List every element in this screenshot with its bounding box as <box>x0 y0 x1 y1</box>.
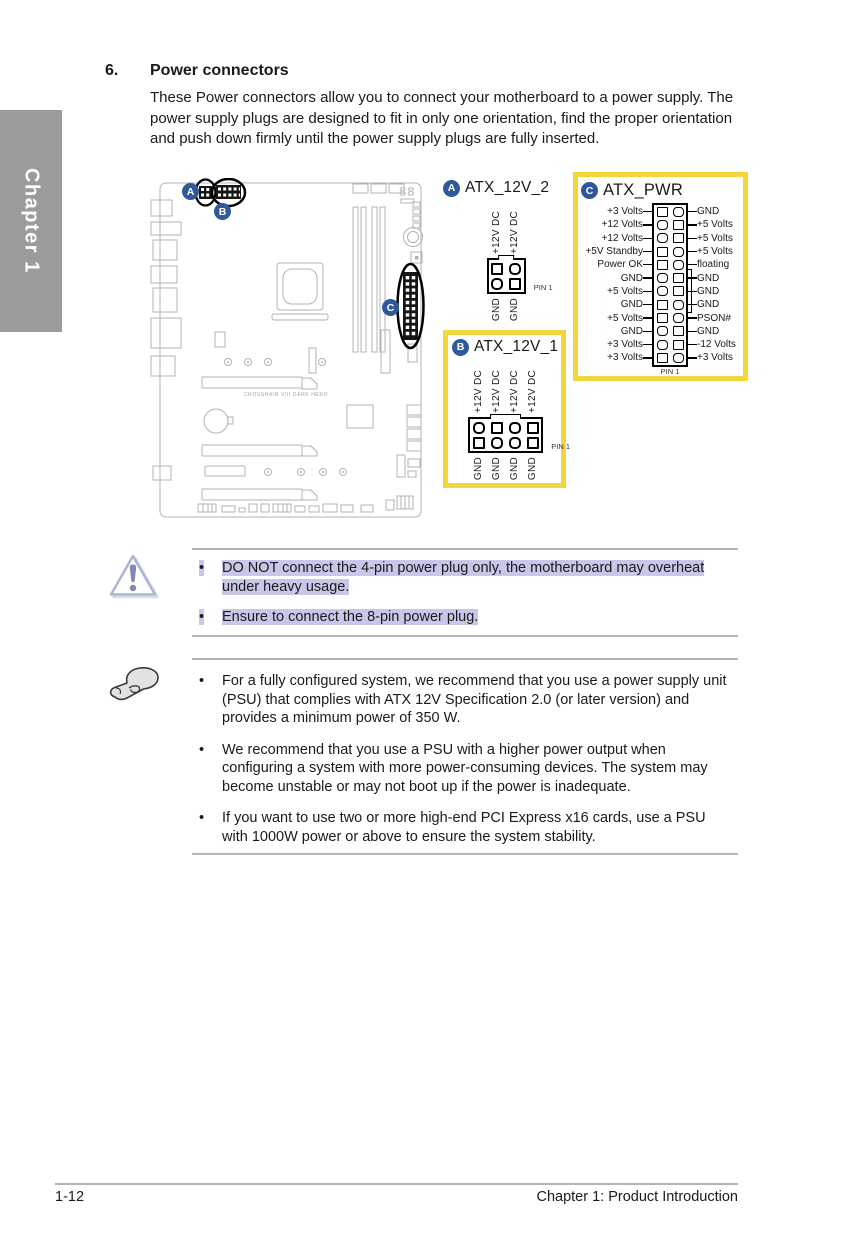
bullet-dot: • <box>199 609 204 625</box>
pin <box>509 422 521 434</box>
pin <box>657 340 668 350</box>
bullet: • <box>192 672 222 728</box>
pin-label-right: GND <box>697 273 740 284</box>
pin <box>673 353 684 363</box>
pin-label: GND <box>488 298 506 321</box>
pin-label-left: +3 Volts <box>581 352 643 363</box>
atx-pwr-row: +3 Volts+3 Volts <box>581 351 740 364</box>
dimm-slots <box>353 207 385 352</box>
panel-b-badge: B <box>452 339 469 356</box>
bullet: • <box>192 741 222 797</box>
pin-label-text: +12V DC <box>492 211 502 254</box>
atx-pwr-row: GNDGND <box>581 298 740 311</box>
pin-pair <box>652 207 688 217</box>
bullet: • <box>192 809 222 846</box>
pin-lead-line <box>643 238 652 239</box>
page-number: 1-12 <box>55 1189 84 1205</box>
pin <box>509 263 521 275</box>
pin <box>673 326 684 336</box>
pin <box>657 273 668 283</box>
pin <box>673 220 684 230</box>
pin-label-left: GND <box>581 326 643 337</box>
motherboard-diagram: 88 CROSSHAIR VIII DARK HERO <box>150 178 430 522</box>
pin-label-right: PSON# <box>697 313 740 324</box>
pin-lead-line <box>643 224 652 225</box>
pin-label-left: +3 Volts <box>581 339 643 350</box>
pin <box>657 207 668 217</box>
pin-label-text: GND <box>510 457 520 480</box>
pin <box>473 422 485 434</box>
pin-pair <box>652 340 688 350</box>
list-item-text-span: If you want to use two or more high-end … <box>222 810 706 845</box>
pin-label-text: GND <box>528 457 538 480</box>
pin-label-text: +12V DC <box>528 370 538 413</box>
pin-row <box>473 437 539 449</box>
bullet-dot: • <box>199 673 204 689</box>
power-connector-figure: 88 CROSSHAIR VIII DARK HERO A B C <box>0 160 848 560</box>
warning-list: •DO NOT connect the 4-pin power plug onl… <box>192 559 738 627</box>
debug-code-display: 88 <box>399 184 415 199</box>
rear-io-ports <box>151 200 181 480</box>
pin-label: GND <box>506 298 524 321</box>
pin-lead-line <box>688 264 697 265</box>
pin-lead-line <box>688 251 697 252</box>
panel-a-badge: A <box>443 180 460 197</box>
pin-pair <box>652 326 688 336</box>
pin-label-text: GND <box>492 457 502 480</box>
pin-label-right: floating <box>697 259 740 270</box>
panel-c-badge: C <box>581 182 598 199</box>
sata-ports <box>407 405 421 451</box>
pin-label-left: +5V Standby <box>581 246 643 257</box>
atx-12v-2-panel: A ATX_12V_2 +12V DC+12V DCPIN 1GNDGND <box>443 179 569 321</box>
atx-pwr-title: ATX_PWR <box>603 181 683 200</box>
pin-label-text: GND <box>474 457 484 480</box>
pin-lead-line <box>688 344 697 345</box>
pin-label-right: +3 Volts <box>697 352 740 363</box>
pin-label-text: +12V DC <box>492 370 502 413</box>
pin-lead-line <box>688 211 697 212</box>
atx-12v-1-location <box>216 185 241 199</box>
atx-12v-2-header: A ATX_12V_2 <box>443 179 569 197</box>
atx-12v-1-title: ATX_12V_1 <box>474 338 558 356</box>
section-title: Power connectors <box>150 62 289 80</box>
pin-label-left: GND <box>581 273 643 284</box>
pin-label-text: GND <box>492 298 502 321</box>
cmos-battery <box>204 409 228 433</box>
pin <box>673 207 684 217</box>
bullet-dot: • <box>199 742 204 758</box>
pin-label-right: GND <box>697 286 740 297</box>
pin <box>673 313 684 323</box>
pin-labels-top: +12V DC+12V DC <box>488 202 524 254</box>
pin-labels-bottom: GNDGND <box>488 298 524 321</box>
list-item-text-span: DO NOT connect the 4-pin power plug only… <box>222 560 704 595</box>
pin-row <box>491 263 521 275</box>
pin-lead-line <box>643 277 652 278</box>
display-base <box>401 199 414 203</box>
atx-12v-1-panel: B ATX_12V_1 +12V DC+12V DC+12V DC+12V DC… <box>443 330 566 488</box>
list-item-text: DO NOT connect the 4-pin power plug only… <box>222 559 727 596</box>
pin-pair <box>652 286 688 296</box>
atx-pwr-location <box>403 272 418 340</box>
pin-label: +12V DC <box>506 370 524 413</box>
pin-label: +12V DC <box>488 211 506 254</box>
atx-pwr-row: +3 Volts-12 Volts <box>581 338 740 351</box>
board-marker-c-badge: C <box>382 299 399 316</box>
bullet-dot: • <box>199 560 204 576</box>
connector-body: PIN 1 <box>487 258 526 294</box>
pin-lead-line <box>643 357 652 358</box>
pin <box>673 247 684 257</box>
list-item: •Ensure to connect the 8-pin power plug. <box>192 608 738 627</box>
pin-lead-line <box>688 331 697 332</box>
pin-label: +12V DC <box>470 370 488 413</box>
list-item-text-span: Ensure to connect the 8-pin power plug. <box>222 609 478 625</box>
pin-label-text: +12V DC <box>510 211 520 254</box>
pin <box>673 233 684 243</box>
atx-pwr-latch <box>686 269 692 313</box>
list-item-text: Ensure to connect the 8-pin power plug. <box>222 608 727 627</box>
pin <box>491 422 503 434</box>
connector-body: PIN 1 <box>468 417 543 453</box>
pin-label-right: GND <box>697 206 740 217</box>
pin-label-right: +5 Volts <box>697 233 740 244</box>
pin-row <box>473 422 539 434</box>
pin-pair <box>652 233 688 243</box>
pin-pair <box>652 247 688 257</box>
pin-label: GND <box>488 457 506 480</box>
pin1-label: PIN 1 <box>534 283 553 292</box>
board-marker-b-badge: B <box>214 203 231 220</box>
pin-labels-bottom: GNDGNDGNDGND <box>470 457 542 480</box>
pin-label-left: Power OK <box>581 259 643 270</box>
pump-header <box>404 228 423 247</box>
pin-label: GND <box>524 457 542 480</box>
atx-12v-1-header: B ATX_12V_1 <box>452 338 559 356</box>
pin-label-text: GND <box>510 298 520 321</box>
footer-chapter-title: Chapter 1: Product Introduction <box>438 1189 738 1205</box>
pin-lead-line <box>688 357 697 358</box>
pin-labels-top: +12V DC+12V DC+12V DC+12V DC <box>470 361 542 413</box>
pin-label: +12V DC <box>506 211 524 254</box>
pin-label-right: +5 Volts <box>697 219 740 230</box>
atx-12v-2-location <box>199 186 212 199</box>
screw-holes <box>225 359 347 476</box>
pin-pair <box>652 260 688 270</box>
list-item: •We recommend that you use a PSU with a … <box>192 741 738 797</box>
pin <box>509 437 521 449</box>
fan-headers <box>353 184 404 193</box>
footer-rule <box>55 1183 738 1185</box>
pin-lead-line <box>643 211 652 212</box>
board-marker-a-badge: A <box>182 183 199 200</box>
pin-row <box>491 278 521 290</box>
pin <box>491 263 503 275</box>
atx-pwr-row: +3 VoltsGND <box>581 205 740 218</box>
board-outline-group <box>151 183 423 517</box>
chipset <box>347 405 373 428</box>
atx-12v-1-pinout: +12V DC+12V DC+12V DC+12V DCPIN 1GNDGNDG… <box>452 361 559 480</box>
list-item-text: For a fully configured system, we recomm… <box>222 672 727 728</box>
pin <box>673 286 684 296</box>
pin-lead-line <box>643 251 652 252</box>
pin-lead-line <box>688 317 697 318</box>
pin-label-right: -12 Volts <box>697 339 740 350</box>
atx-pwr-row: +12 Volts+5 Volts <box>581 232 740 245</box>
connector-tab <box>498 255 514 260</box>
pin-lead-line <box>643 264 652 265</box>
pin <box>673 273 684 283</box>
manual-page: Chapter 1 6. Power connectors These Powe… <box>0 0 848 1248</box>
pin <box>673 340 684 350</box>
pin-lead-line <box>688 238 697 239</box>
pin1-label: PIN 1 <box>551 442 570 451</box>
pin <box>657 233 668 243</box>
pin-label: +12V DC <box>488 370 506 413</box>
pin-label: GND <box>506 457 524 480</box>
note-block: •For a fully configured system, we recom… <box>192 658 738 855</box>
bullet: • <box>192 559 222 596</box>
pin <box>657 353 668 363</box>
pin-lead-line <box>643 304 652 305</box>
pin <box>527 422 539 434</box>
pin <box>657 313 668 323</box>
pin-pair <box>652 220 688 230</box>
board-model-label: CROSSHAIR VIII DARK HERO <box>244 392 328 398</box>
pin-headers <box>413 202 420 228</box>
m2-connector <box>215 332 225 347</box>
pin <box>657 220 668 230</box>
list-item-text-span: We recommend that you use a PSU with a h… <box>222 742 708 795</box>
pin-pair <box>652 353 688 363</box>
warning-icon <box>107 551 161 601</box>
connector-tab <box>490 414 522 419</box>
pin <box>673 300 684 310</box>
pin <box>657 260 668 270</box>
atx-pwr-row: +5 VoltsGND <box>581 285 740 298</box>
bottom-headers <box>198 496 413 512</box>
list-item-text: We recommend that you use a PSU with a h… <box>222 741 727 797</box>
pin-label-right: GND <box>697 299 740 310</box>
atx-12v-2-pinout: +12V DC+12V DCPIN 1GNDGND <box>443 202 569 321</box>
pin <box>673 260 684 270</box>
pin-label-left: +3 Volts <box>581 206 643 217</box>
pin <box>527 437 539 449</box>
section-intro: These Power connectors allow you to conn… <box>150 88 746 150</box>
pin <box>657 286 668 296</box>
atx-pwr-panel: C ATX_PWR +3 VoltsGND+12 Volts+5 Volts+1… <box>573 172 748 381</box>
list-item-text-span: For a fully configured system, we recomm… <box>222 673 727 726</box>
section-number: 6. <box>105 62 118 80</box>
note-hand-icon <box>105 660 163 706</box>
atx-pwr-rows: +3 VoltsGND+12 Volts+5 Volts+12 Volts+5 … <box>581 205 740 365</box>
pin-lead-line <box>643 317 652 318</box>
pin <box>657 326 668 336</box>
atx-pwr-pin1-label: PIN 1 <box>652 367 688 376</box>
bullet: • <box>192 608 222 627</box>
list-item: •If you want to use two or more high-end… <box>192 809 738 846</box>
atx-pwr-row: Power OKfloating <box>581 258 740 271</box>
pin-label: GND <box>470 457 488 480</box>
atx-pwr-row: GNDGND <box>581 271 740 284</box>
list-item-text: If you want to use two or more high-end … <box>222 809 727 846</box>
pin-label-left: +12 Volts <box>581 233 643 244</box>
list-item: •For a fully configured system, we recom… <box>192 672 738 728</box>
pin <box>491 437 503 449</box>
pin <box>657 247 668 257</box>
pin-label-left: GND <box>581 299 643 310</box>
pin-pair <box>652 313 688 323</box>
pin-pair <box>652 273 688 283</box>
pin-label-left: +12 Volts <box>581 219 643 230</box>
pin-label-text: +12V DC <box>474 370 484 413</box>
atx-pwr-row: +5V Standby+5 Volts <box>581 245 740 258</box>
atx-12v-2-title: ATX_12V_2 <box>465 179 549 197</box>
pin-label-right: +5 Volts <box>697 246 740 257</box>
pin-label-left: +5 Volts <box>581 313 643 324</box>
atx-pwr-header: C ATX_PWR <box>581 181 740 200</box>
atx-pwr-row: +12 Volts+5 Volts <box>581 218 740 231</box>
bullet-dot: • <box>199 810 204 826</box>
atx-pwr-row: GNDGND <box>581 325 740 338</box>
pin <box>657 300 668 310</box>
list-item: •DO NOT connect the 4-pin power plug onl… <box>192 559 738 596</box>
pin-label-right: GND <box>697 326 740 337</box>
pin-label: +12V DC <box>524 370 542 413</box>
pin-label-text: +12V DC <box>510 370 520 413</box>
pin <box>491 278 503 290</box>
pin <box>509 278 521 290</box>
atx-pwr-row: +5 VoltsPSON# <box>581 311 740 324</box>
pin-lead-line <box>688 224 697 225</box>
pin-lead-line <box>643 291 652 292</box>
pin-pair <box>652 300 688 310</box>
pin-label-left: +5 Volts <box>581 286 643 297</box>
cpu-socket <box>272 263 328 320</box>
pin-lead-line <box>643 344 652 345</box>
warning-block: •DO NOT connect the 4-pin power plug onl… <box>192 548 738 637</box>
pin <box>473 437 485 449</box>
m2-slot <box>309 348 316 373</box>
note-list: •For a fully configured system, we recom… <box>192 672 738 846</box>
pin-lead-line <box>643 331 652 332</box>
